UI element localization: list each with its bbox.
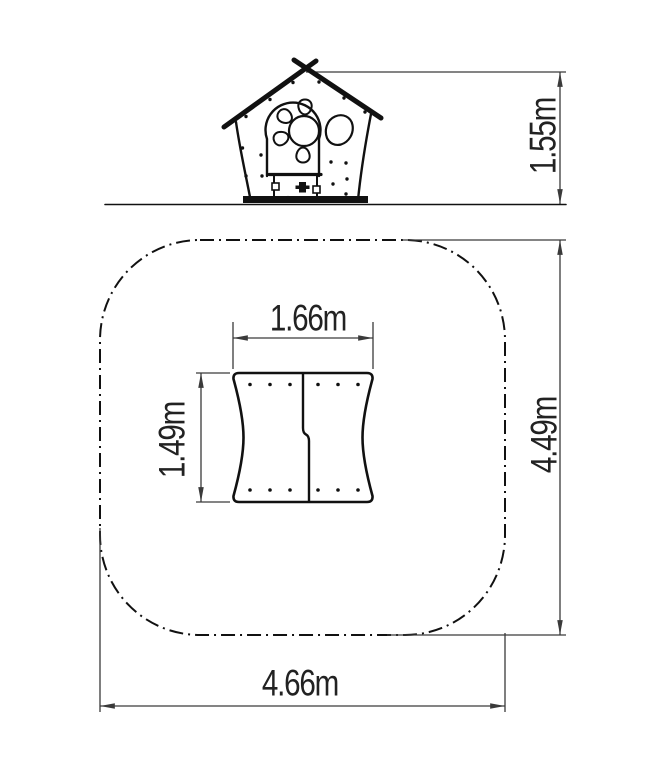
panel-cross bbox=[296, 182, 310, 193]
wall-right bbox=[358, 114, 371, 200]
flower-window-disc bbox=[289, 116, 319, 146]
dimension-label-safety-zone-width: 4.66m bbox=[262, 665, 338, 702]
dimension-label-footprint-depth: 1.49m bbox=[154, 402, 191, 478]
climb-panel bbox=[272, 176, 320, 196]
wall-left bbox=[236, 122, 250, 197]
dimension-label-safety-zone-depth: 4.49m bbox=[526, 397, 563, 473]
footprint-depth-dimension bbox=[196, 373, 230, 502]
flower-window-petals bbox=[272, 100, 312, 163]
footprint bbox=[233, 373, 372, 502]
dimension-label-footprint-width: 1.66m bbox=[270, 300, 346, 337]
footprint-split-line bbox=[303, 373, 309, 502]
technical-drawing-canvas: 1.55m 1.66m 1.49m 4.49m 4.66m bbox=[0, 0, 648, 768]
base-plate bbox=[243, 196, 368, 203]
roof-right bbox=[294, 60, 381, 118]
side-window bbox=[326, 115, 353, 145]
dimension-label-elevation-height: 1.55m bbox=[525, 98, 562, 174]
playhouse-elevation bbox=[105, 60, 566, 205]
elevation-view bbox=[105, 60, 566, 205]
